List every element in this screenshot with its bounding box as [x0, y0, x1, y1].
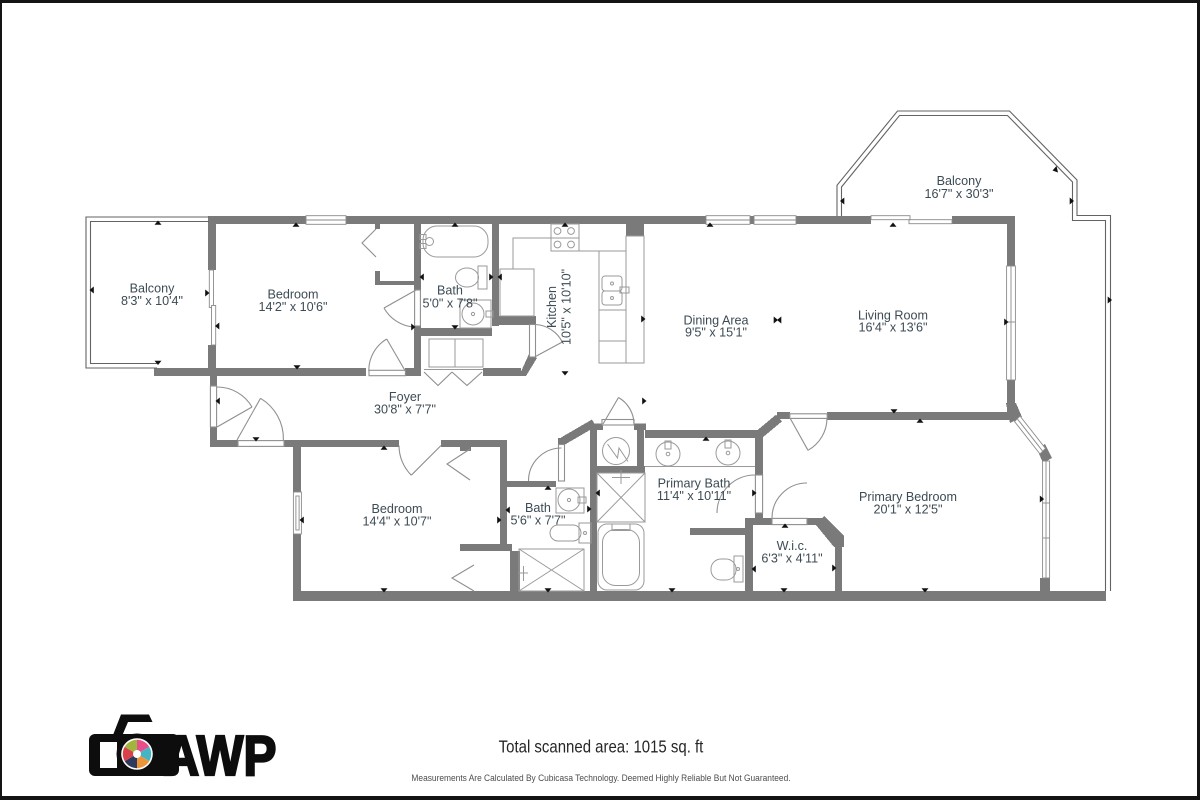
- svg-text:Total scanned area: 1015 sq. f: Total scanned area: 1015 sq. ft: [499, 737, 704, 756]
- svg-text:20'1" x 12'5": 20'1" x 12'5": [873, 503, 942, 517]
- svg-text:16'7" x 30'3": 16'7" x 30'3": [924, 187, 993, 201]
- svg-text:Measurements Are Calculated By: Measurements Are Calculated By Cubicasa …: [411, 772, 790, 783]
- svg-text:14'4" x 10'7": 14'4" x 10'7": [362, 515, 431, 529]
- svg-text:9'5" x 15'1": 9'5" x 15'1": [685, 326, 747, 340]
- svg-text:AWP: AWP: [164, 725, 277, 788]
- svg-text:6'3" x 4'11": 6'3" x 4'11": [761, 552, 822, 566]
- svg-text:Balcony: Balcony: [937, 174, 983, 188]
- svg-text:16'4" x 13'6": 16'4" x 13'6": [858, 321, 927, 335]
- svg-text:10'5" x 10'10": 10'5" x 10'10": [560, 269, 574, 345]
- svg-text:5'6" x 7'7": 5'6" x 7'7": [510, 514, 565, 528]
- svg-text:Kitchen: Kitchen: [545, 286, 559, 328]
- svg-text:8'3" x 10'4": 8'3" x 10'4": [121, 294, 183, 308]
- svg-text:Bath: Bath: [437, 284, 463, 298]
- svg-text:14'2" x 10'6": 14'2" x 10'6": [258, 300, 327, 314]
- svg-text:11'4" x 10'11": 11'4" x 10'11": [657, 489, 731, 503]
- svg-text:30'8" x 7'7": 30'8" x 7'7": [374, 403, 436, 417]
- svg-text:5'0" x 7'8": 5'0" x 7'8": [422, 297, 477, 311]
